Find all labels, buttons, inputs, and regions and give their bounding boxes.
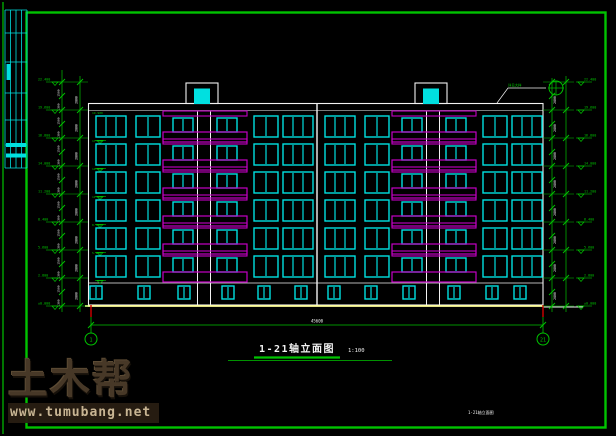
level-text: 19.600 [584, 106, 596, 110]
level-text: 2.800 [38, 274, 48, 278]
window-frame [96, 200, 126, 221]
level-symbol [578, 250, 584, 254]
balcony-window [402, 118, 422, 132]
building-elevation: 19.90017.10014.30011.5008.7005.900 [85, 83, 583, 317]
dim-text: 2800 [553, 264, 557, 272]
balcony-parapet-band [163, 216, 247, 226]
balcony-window [402, 202, 422, 216]
window-frame [96, 172, 126, 193]
window-frame [512, 144, 542, 165]
balcony-window [402, 146, 422, 160]
level-symbol [578, 138, 584, 142]
balcony-window [217, 258, 237, 272]
level-text: ±0.000 [38, 302, 50, 306]
window-frame [325, 144, 355, 165]
balcony-rail-band [392, 111, 476, 116]
dim-text: 1500 [57, 285, 61, 292]
window-3pane [512, 116, 542, 137]
dim-text: 2800 [75, 208, 79, 216]
window-frame [283, 200, 313, 221]
level-symbol [578, 306, 584, 310]
window-3pane [283, 116, 313, 137]
level-symbol [578, 166, 584, 170]
balcony-parapet-band [392, 216, 476, 226]
dim-text: 2800 [553, 208, 557, 216]
cad-viewer: 19.90017.10014.30011.5008.7005.900 28002… [0, 0, 616, 436]
level-symbol [52, 222, 58, 226]
window-frame [283, 144, 313, 165]
window-2pane [483, 116, 507, 137]
title-strip-text-blob [7, 64, 11, 80]
window-frame [283, 172, 313, 193]
dim-text: 2800 [75, 124, 79, 132]
window-2pane [365, 144, 389, 165]
dim-text: 1300 [57, 299, 61, 306]
dim-text: 1500 [57, 229, 61, 236]
window-frame [325, 256, 355, 277]
basement-window [514, 286, 526, 299]
balcony-window [217, 202, 237, 216]
level-text: 22.400 [38, 78, 50, 82]
dim-text: 1300 [57, 271, 61, 278]
window-2pane [365, 256, 389, 277]
dim-text: 2800 [553, 124, 557, 132]
level-text: 11.200 [38, 190, 50, 194]
balcony-parapet-band [163, 160, 247, 170]
floor-level-text: 8.700 [92, 223, 101, 227]
window-2pane [136, 200, 160, 221]
dim-text: 1500 [57, 145, 61, 152]
level-text: 11.200 [584, 190, 596, 194]
roof-leader-line [497, 88, 546, 103]
window-frame [512, 172, 542, 193]
window-frame [96, 256, 126, 277]
floor-level-text: 11.500 [92, 195, 103, 199]
floor-level-text: 19.900 [92, 111, 103, 115]
window-3pane [512, 144, 542, 165]
dim-text: 1300 [57, 243, 61, 250]
balcony-window [446, 118, 466, 132]
dim-text: 1500 [57, 117, 61, 124]
title-strip-text-blob [6, 143, 26, 147]
level-symbol [578, 222, 584, 226]
window-3pane [325, 116, 355, 137]
window-3pane [512, 228, 542, 249]
window-2pane [483, 228, 507, 249]
window-2pane [365, 200, 389, 221]
balcony-parapet-band [163, 188, 247, 198]
dim-text: 1500 [57, 89, 61, 96]
balcony-rail-band [163, 111, 247, 116]
basement-window [448, 286, 460, 299]
window-2pane [136, 228, 160, 249]
level-text: 16.800 [584, 134, 596, 138]
window-3pane [96, 256, 126, 277]
dim-text-total: 45600 [311, 319, 324, 324]
level-symbol [52, 250, 58, 254]
balcony-parapet-band [392, 160, 476, 170]
window-3pane [283, 256, 313, 277]
window-frame [96, 116, 126, 137]
window-2pane [254, 228, 278, 249]
level-text: 19.600 [38, 106, 50, 110]
basement-window [258, 286, 270, 299]
level-symbol [52, 194, 58, 198]
footer-note: 1-21轴立面图 [468, 409, 494, 415]
window-3pane [96, 144, 126, 165]
level-text: 8.400 [38, 218, 48, 222]
window-3pane [325, 172, 355, 193]
balcony-window [446, 146, 466, 160]
dim-text: 2800 [553, 180, 557, 188]
basement-window [138, 286, 150, 299]
window-frame [325, 172, 355, 193]
window-frame [512, 228, 542, 249]
dim-text: 1500 [57, 257, 61, 264]
dim-text: 2800 [553, 292, 557, 300]
roof-callout-text: 详见大样 [508, 83, 522, 88]
window-2pane [365, 172, 389, 193]
level-symbol [52, 110, 58, 114]
level-symbol [578, 82, 584, 86]
basement-window [328, 286, 340, 299]
window-3pane [512, 172, 542, 193]
window-frame [96, 144, 126, 165]
roof-bulkhead-window [424, 89, 439, 104]
balcony-parapet-band [392, 132, 476, 142]
level-text: ±0.000 [584, 302, 596, 306]
window-2pane [254, 200, 278, 221]
level-text: 5.600 [38, 246, 48, 250]
window-frame [325, 228, 355, 249]
balcony-window [217, 118, 237, 132]
balcony-window [446, 230, 466, 244]
balcony-window [173, 230, 193, 244]
window-3pane [96, 228, 126, 249]
balcony-window [217, 230, 237, 244]
window-3pane [283, 200, 313, 221]
balcony-parapet-band [163, 244, 247, 254]
window-2pane [483, 172, 507, 193]
window-2pane [365, 228, 389, 249]
window-3pane [96, 116, 126, 137]
title-strip-text-blob [6, 154, 26, 158]
window-2pane [136, 172, 160, 193]
balcony-window [173, 202, 193, 216]
balcony-window [402, 174, 422, 188]
dim-text: 2800 [75, 292, 79, 300]
window-2pane [365, 116, 389, 137]
level-text: 8.400 [584, 218, 594, 222]
roof-bulkhead-window [195, 89, 210, 104]
level-symbol [52, 82, 58, 86]
basement-window [178, 286, 190, 299]
balcony-window [402, 230, 422, 244]
dim-text: 1300 [57, 215, 61, 222]
dim-text: 1500 [57, 201, 61, 208]
dim-text: 1300 [57, 131, 61, 138]
basement-window [90, 286, 102, 299]
basement-window [365, 286, 377, 299]
window-3pane [325, 144, 355, 165]
balcony-parapet-band [163, 132, 247, 142]
balcony-parapet-band [392, 244, 476, 254]
floor-level-text: 5.900 [92, 251, 101, 255]
dim-text: 2800 [75, 96, 79, 104]
window-3pane [325, 256, 355, 277]
balcony-parapet-band [392, 188, 476, 198]
dim-text: 1500 [57, 173, 61, 180]
floor-level-text: 17.100 [92, 139, 103, 143]
dim-text: 1300 [57, 159, 61, 166]
dim-text: 1300 [57, 103, 61, 110]
floor-level-text: 14.300 [92, 167, 103, 171]
window-3pane [283, 228, 313, 249]
balcony-window [217, 174, 237, 188]
balcony-window [173, 118, 193, 132]
level-symbol [52, 306, 58, 310]
basement-window [295, 286, 307, 299]
window-frame [325, 116, 355, 137]
window-frame [283, 228, 313, 249]
dim-text: 2800 [75, 264, 79, 272]
basement-window [222, 286, 234, 299]
drawing-scale: 1:100 [348, 348, 365, 354]
window-2pane [136, 116, 160, 137]
window-frame [325, 200, 355, 221]
balcony-window [173, 146, 193, 160]
level-symbol [52, 166, 58, 170]
window-frame [512, 116, 542, 137]
axis-label-left: 1 [89, 338, 92, 344]
dim-text: 2800 [553, 236, 557, 244]
window-frame [96, 228, 126, 249]
window-3pane [325, 228, 355, 249]
level-text: 5.600 [584, 246, 594, 250]
window-2pane [254, 144, 278, 165]
level-text: 14.000 [584, 162, 596, 166]
balcony-parapet-band [163, 272, 247, 282]
window-2pane [136, 256, 160, 277]
window-3pane [283, 144, 313, 165]
window-2pane [483, 200, 507, 221]
window-3pane [96, 172, 126, 193]
window-3pane [325, 200, 355, 221]
level-symbol [578, 194, 584, 198]
balcony-window [446, 258, 466, 272]
level-symbol [52, 278, 58, 282]
basement-window [403, 286, 415, 299]
level-text: 22.400 [584, 78, 596, 82]
level-symbol [52, 138, 58, 142]
dim-text: 2800 [553, 96, 557, 104]
watermark-brand: 土木帮 [8, 359, 159, 401]
level-text: 16.800 [38, 134, 50, 138]
balcony-window [217, 146, 237, 160]
dim-text: 1300 [57, 187, 61, 194]
balcony-window [173, 258, 193, 272]
dim-text: 2800 [75, 152, 79, 160]
window-2pane [254, 116, 278, 137]
window-3pane [283, 172, 313, 193]
window-2pane [483, 144, 507, 165]
level-symbol [578, 110, 584, 114]
window-3pane [512, 200, 542, 221]
window-2pane [254, 172, 278, 193]
window-2pane [254, 256, 278, 277]
balcony-window [446, 174, 466, 188]
basement-window [486, 286, 498, 299]
window-frame [512, 256, 542, 277]
window-frame [512, 200, 542, 221]
window-3pane [512, 256, 542, 277]
dim-text: 2800 [75, 236, 79, 244]
axis-label-right: 21 [540, 338, 546, 344]
dim-text: 2800 [553, 152, 557, 160]
balcony-window [402, 258, 422, 272]
level-text: 2.800 [584, 274, 594, 278]
window-2pane [483, 256, 507, 277]
watermark-url: www.tumubang.net [8, 403, 159, 423]
drawing-title: 1-21轴立面图 [259, 342, 335, 355]
level-symbol [578, 278, 584, 282]
window-frame [283, 116, 313, 137]
window-3pane [96, 200, 126, 221]
dim-text: 2800 [75, 180, 79, 188]
balcony-window [173, 174, 193, 188]
window-2pane [136, 144, 160, 165]
balcony-window [446, 202, 466, 216]
watermark: 土木帮 www.tumubang.net [8, 359, 159, 423]
window-frame [283, 256, 313, 277]
level-text: 14.000 [38, 162, 50, 166]
balcony-parapet-band [392, 272, 476, 282]
title-block-strip [5, 10, 27, 168]
